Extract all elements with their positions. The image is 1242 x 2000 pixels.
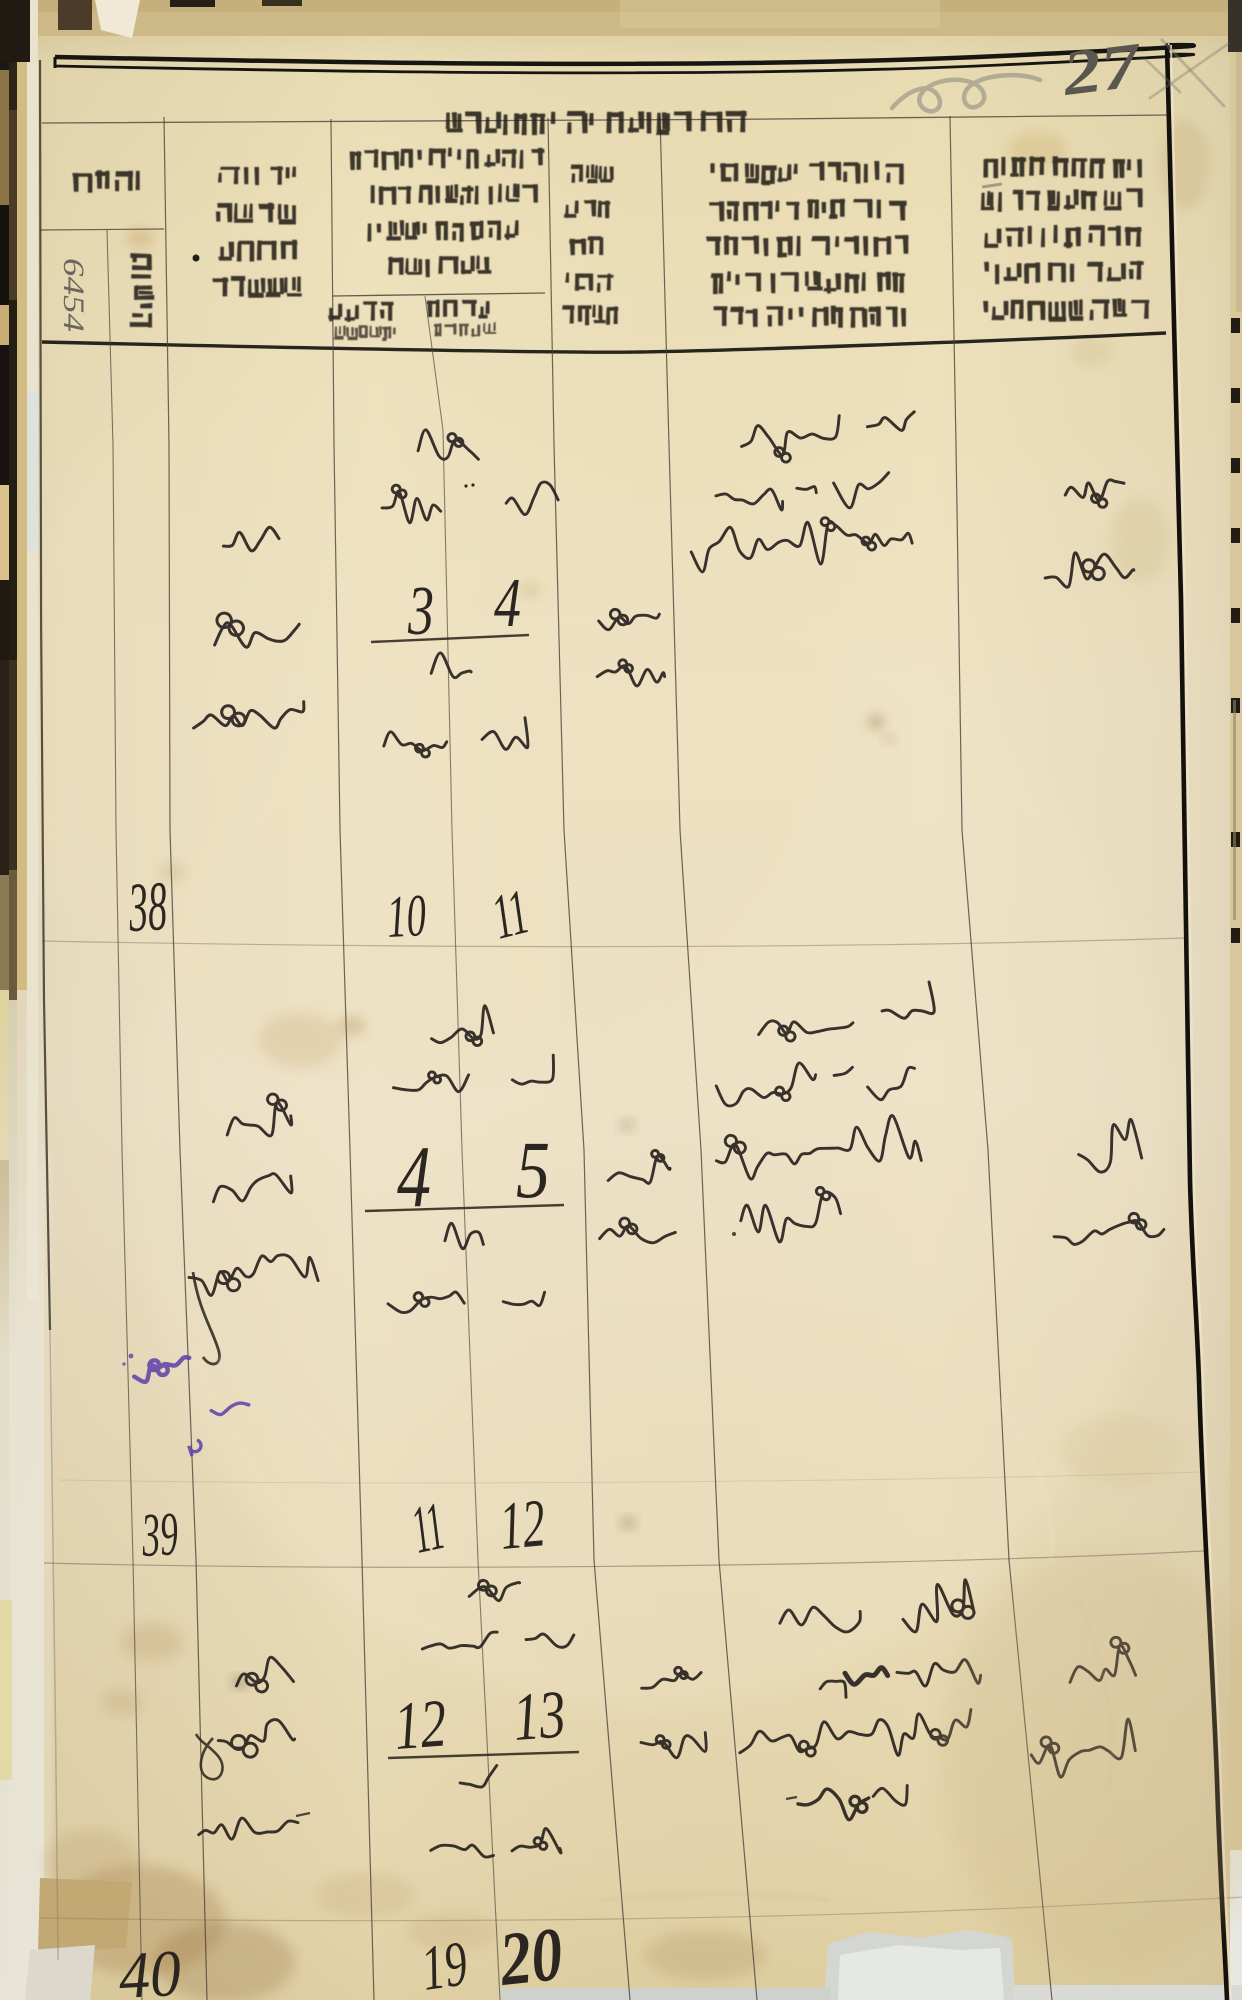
svg-text:10: 10	[385, 882, 427, 950]
svg-text:20: 20	[495, 1912, 566, 2000]
svg-text:4: 4	[397, 1129, 431, 1226]
svg-text:13: 13	[511, 1676, 568, 1755]
svg-text:6454: 6454	[57, 258, 90, 332]
svg-text:4: 4	[494, 565, 521, 642]
svg-text:12: 12	[497, 1484, 548, 1564]
svg-text:38: 38	[126, 868, 169, 947]
svg-text:27: 27	[1058, 29, 1147, 109]
svg-text:12: 12	[392, 1685, 449, 1764]
svg-text:40: 40	[117, 1937, 183, 2000]
svg-text:39: 39	[140, 1500, 180, 1570]
svg-text:5: 5	[516, 1124, 550, 1215]
